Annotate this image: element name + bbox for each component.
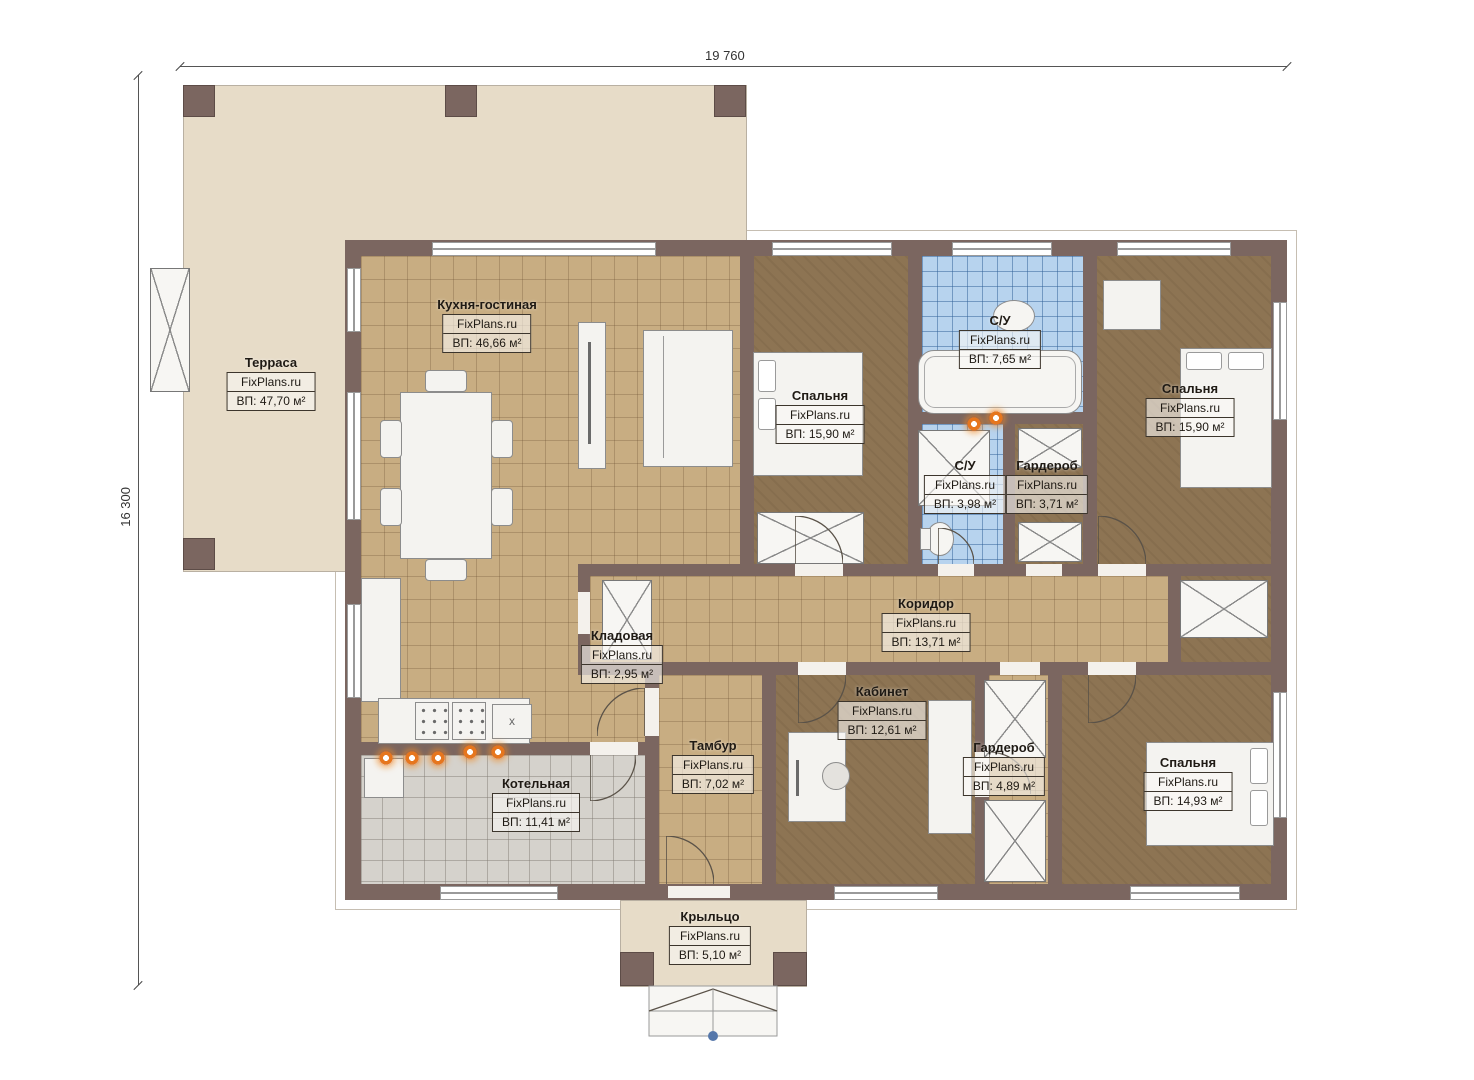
terrace-column [445, 85, 477, 117]
window [1130, 886, 1240, 900]
chair [491, 488, 513, 526]
room-name: Кладовая [581, 628, 663, 643]
chair [425, 370, 467, 392]
room-name: Крыльцо [669, 909, 751, 924]
room-name: С/У [924, 458, 1006, 473]
brand-watermark: FixPlans.ru [670, 927, 750, 945]
room-area: ВП: 14,93 м² [1145, 791, 1232, 810]
window [834, 886, 938, 900]
window [1273, 302, 1287, 420]
terrace-column [714, 85, 746, 117]
room-area: ВП: 4,89 м² [964, 776, 1044, 795]
pillow [1250, 790, 1268, 826]
brand-watermark: FixPlans.ru [444, 315, 531, 333]
brand-watermark: FixPlans.ru [582, 646, 662, 664]
room-label-bedroom1: Спальня FixPlans.ruВП: 15,90 м² [776, 388, 865, 444]
brand-watermark: FixPlans.ru [673, 756, 753, 774]
pillow [1250, 748, 1268, 784]
chair [380, 420, 402, 458]
sofa-cushion-line [663, 336, 664, 458]
brand-watermark: FixPlans.ru [777, 406, 864, 424]
chair [425, 559, 467, 581]
chair [380, 488, 402, 526]
room-area: ВП: 3,98 м² [925, 494, 1005, 513]
room-area: ВП: 13,71 м² [883, 632, 970, 651]
terrace-column [183, 85, 215, 117]
terrace-window-symbol [150, 268, 190, 392]
window [347, 268, 361, 332]
window [1273, 692, 1287, 818]
room-area: ВП: 7,02 м² [673, 774, 753, 793]
wardrobe-cabinet [1180, 580, 1268, 638]
door-arc [795, 516, 843, 564]
dresser [1103, 280, 1161, 330]
oven [452, 702, 486, 740]
window [772, 242, 892, 256]
dining-table [400, 392, 492, 559]
tv-stand [578, 322, 606, 469]
wall-bath-bedroom2 [1083, 240, 1097, 576]
wall-outer-left [345, 240, 361, 900]
pillow [758, 398, 776, 430]
pillow [758, 360, 776, 392]
room-area: ВП: 47,70 м² [228, 391, 315, 410]
door-gap [795, 564, 843, 576]
entry-door-gap [668, 886, 730, 898]
door-gap [645, 688, 659, 736]
room-label-bathroom2: С/У FixPlans.ruВП: 3,98 м² [924, 458, 1006, 514]
brand-watermark: FixPlans.ru [839, 702, 926, 720]
window [1117, 242, 1231, 256]
office-chair [822, 762, 850, 790]
room-area: ВП: 3,71 м² [1007, 494, 1087, 513]
window [440, 886, 558, 900]
room-name: Гардероб [1006, 458, 1088, 473]
brand-watermark: FixPlans.ru [493, 794, 579, 812]
chair [491, 420, 513, 458]
heating-marker [378, 750, 394, 766]
entry-marker [708, 1031, 718, 1041]
room-name: Терраса [227, 355, 316, 370]
room-name: С/У [959, 313, 1041, 328]
door-arc [1098, 516, 1146, 564]
door-gap [798, 662, 846, 675]
wall-kitchen-bedroom1 [740, 240, 754, 576]
wall-corridor-top [578, 564, 1287, 576]
brand-watermark: FixPlans.ru [960, 331, 1040, 349]
wall-vestibule-office [762, 675, 776, 884]
window [347, 604, 361, 698]
wall-wardrobe2-bedroom3 [1048, 675, 1062, 884]
door-gap [1088, 662, 1136, 675]
room-area: ВП: 2,95 м² [582, 664, 662, 683]
room-label-vestibule: Тамбур FixPlans.ruВП: 7,02 м² [672, 738, 754, 794]
brand-watermark: FixPlans.ru [1147, 399, 1234, 417]
room-label-corridor: Коридор FixPlans.ruВП: 13,71 м² [882, 596, 971, 652]
heating-marker [966, 416, 982, 432]
room-name: Тамбур [672, 738, 754, 753]
room-label-bedroom3: Спальня FixPlans.ruВП: 14,93 м² [1144, 755, 1233, 811]
room-area: ВП: 5,10 м² [670, 945, 750, 964]
door-gap [1098, 564, 1146, 576]
room-area: ВП: 11,41 м² [493, 812, 579, 831]
kitchen-counter [361, 578, 401, 702]
room-area: ВП: 7,65 м² [960, 349, 1040, 368]
tv [588, 342, 591, 444]
door-arc [597, 688, 645, 736]
room-label-boiler: Котельная FixPlans.ruВП: 11,41 м² [492, 776, 580, 832]
wardrobe-cabinet [984, 800, 1046, 882]
brand-watermark: FixPlans.ru [925, 476, 1005, 494]
heating-marker [462, 744, 478, 760]
dimension-line-top [180, 66, 1287, 67]
wardrobe-cabinet [1018, 522, 1082, 562]
room-area: ВП: 12,61 м² [839, 720, 926, 739]
room-area: ВП: 15,90 м² [777, 424, 864, 443]
room-label-wardrobe2: Гардероб FixPlans.ruВП: 4,89 м² [963, 740, 1045, 796]
heating-marker [988, 410, 1004, 426]
heating-marker [490, 744, 506, 760]
door-arc [666, 836, 714, 884]
dimension-line-left [138, 75, 139, 985]
porch-column [620, 952, 654, 986]
door-gap [1026, 564, 1062, 576]
door-gap [938, 564, 974, 576]
room-area: ВП: 15,90 м² [1147, 417, 1234, 436]
room-name: Спальня [776, 388, 865, 403]
kitchen-sink: x [492, 704, 532, 739]
room-label-porch: Крыльцо FixPlans.ruВП: 5,10 м² [669, 909, 751, 965]
room-name: Гардероб [963, 740, 1045, 755]
room-label-kitchen: Кухня-гостиная FixPlans.ruВП: 46,66 м² [437, 297, 537, 353]
room-label-office: Кабинет FixPlans.ruВП: 12,61 м² [838, 684, 927, 740]
terrace-column [183, 538, 215, 570]
terrace-door-opening [347, 392, 361, 520]
dimension-width-label: 19 760 [705, 48, 745, 63]
door-gap [1000, 662, 1040, 675]
door-arc [938, 528, 974, 564]
sofa [643, 330, 733, 467]
pillow [1186, 352, 1222, 370]
room-name: Коридор [882, 596, 971, 611]
door-arc [1088, 675, 1136, 723]
brand-watermark: FixPlans.ru [964, 758, 1044, 776]
brand-watermark: FixPlans.ru [1145, 773, 1232, 791]
room-area: ВП: 46,66 м² [444, 333, 531, 352]
room-name: Спальня [1146, 381, 1235, 396]
toilet-tank [920, 528, 931, 550]
brand-watermark: FixPlans.ru [228, 373, 315, 391]
wall-bedroom1-bath [908, 240, 922, 576]
stove [415, 702, 449, 740]
window [952, 242, 1052, 256]
heating-marker [404, 750, 420, 766]
door-gap [590, 742, 638, 755]
room-label-wardrobe1: Гардероб FixPlans.ruВП: 3,71 м² [1006, 458, 1088, 514]
monitor [796, 760, 799, 796]
room-name: Котельная [492, 776, 580, 791]
brand-watermark: FixPlans.ru [1007, 476, 1087, 494]
room-name: Кухня-гостиная [437, 297, 537, 312]
heating-marker [430, 750, 446, 766]
brand-watermark: FixPlans.ru [883, 614, 970, 632]
window [432, 242, 656, 256]
porch-steps [648, 985, 778, 1043]
porch-column [773, 952, 807, 986]
wall-corridor-bottom [578, 662, 1287, 675]
room-label-bathroom1: С/У FixPlans.ruВП: 7,65 м² [959, 313, 1041, 369]
dimension-height-label: 16 300 [118, 487, 133, 527]
room-label-storage: Кладовая FixPlans.ruВП: 2,95 м² [581, 628, 663, 684]
room-label-terrace: Терраса FixPlans.ruВП: 47,70 м² [227, 355, 316, 411]
room-label-bedroom2: Спальня FixPlans.ruВП: 15,90 м² [1146, 381, 1235, 437]
room-name: Спальня [1144, 755, 1233, 770]
door-arc [590, 755, 636, 801]
room-name: Кабинет [838, 684, 927, 699]
floor-plan: 19 760 16 300 [0, 0, 1474, 1080]
pillow [1228, 352, 1264, 370]
